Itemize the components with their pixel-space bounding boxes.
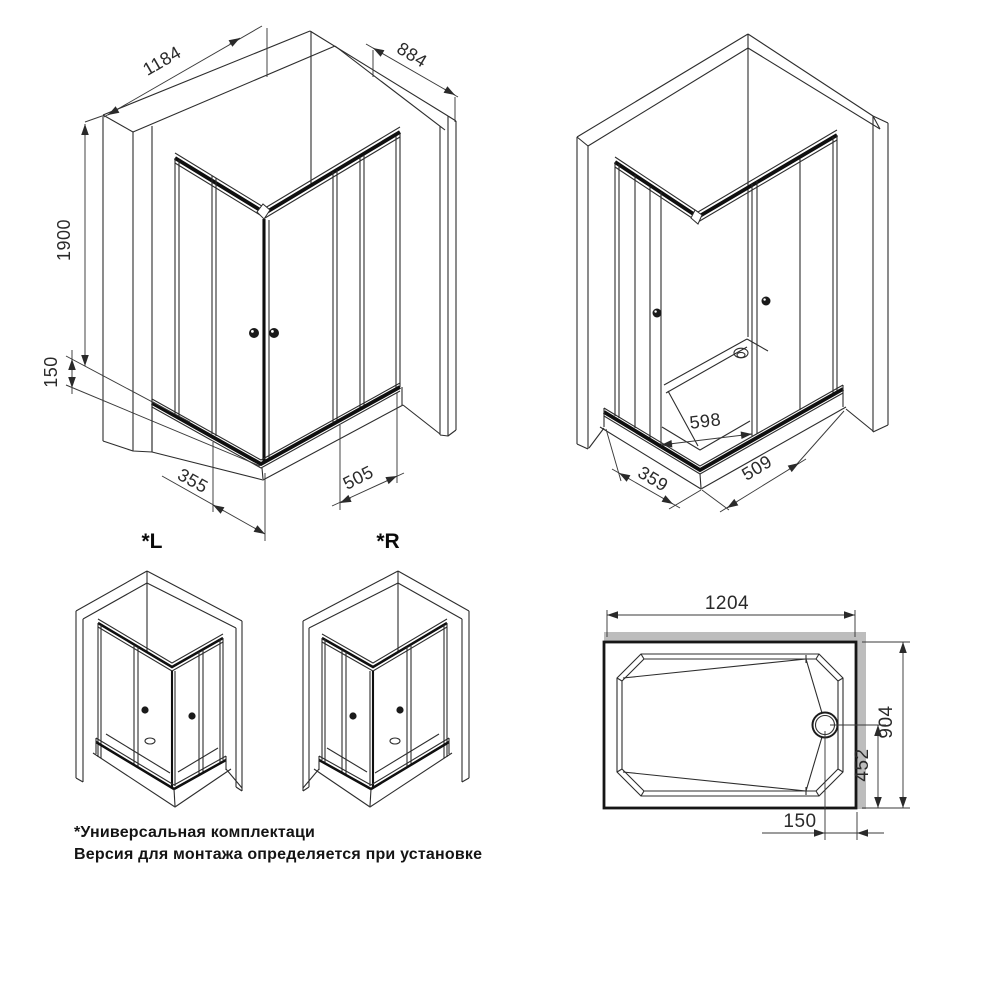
variant-labels: *L *R [142,530,400,553]
door-knob-right-glint [763,298,765,300]
variant-left-view [76,571,242,807]
dim-right-door-label: 509 [738,451,775,484]
footnote: *Универсальная комплектаци Версия для мо… [74,822,482,866]
footnote-line2: Версия для монтажа определяется при уста… [74,844,482,866]
top-rail [175,132,400,213]
top-rail-edge [175,127,400,208]
dimensions: 598 359 509 [606,409,844,512]
dim-entry-opening-label: 598 [688,409,722,433]
iso-view-closed: 1184 884 1900 150 [41,26,458,541]
dim-drain-from-bottom-label: 452 [852,748,873,781]
tray-skirt [93,753,231,807]
iso-view-open: 598 359 509 [577,34,888,512]
dim-left-door-label: 355 [174,464,211,497]
walls [103,31,456,452]
door-knob-left-glint [654,310,656,312]
footnote-line1: *Универсальная комплектаци [74,822,482,844]
variant-left-label: *L [142,530,163,553]
enclosure-frame [175,127,400,462]
technical-drawing-canvas: 1184 884 1900 150 [0,0,1000,1000]
dim-height-label: 1900 [54,219,74,261]
dim-depth-label: 884 [393,38,430,71]
bottom-rail [96,742,226,789]
variant-right-label: *R [376,530,399,553]
dim-length-label: 1204 [705,593,749,614]
door-knob-left [141,706,148,713]
variant-right-view [303,571,469,807]
dim-drain-from-right-label: 150 [783,811,816,832]
dim-width-label: 904 [876,705,897,738]
wall-gray-band-top [604,632,866,642]
walls [577,34,888,449]
door-knob-right [188,712,195,719]
enclosure-frame [98,619,223,787]
bottom-rail [152,387,400,464]
drain-inner [737,352,745,357]
door-knob-right [269,328,279,338]
door-knob-right [762,297,771,306]
drain [145,738,155,744]
dim-tray-height-label: 150 [41,356,61,388]
top-rail [615,135,837,217]
enclosure-frame [615,130,837,445]
door-knob-right-glint [271,330,274,333]
door-knob-left [249,328,259,338]
door-knob-left-glint [251,330,254,333]
tray-plan-view: 1204 904 452 150 [604,593,910,840]
door-knob-left [653,309,662,318]
dim-right-door-label: 505 [340,462,377,494]
